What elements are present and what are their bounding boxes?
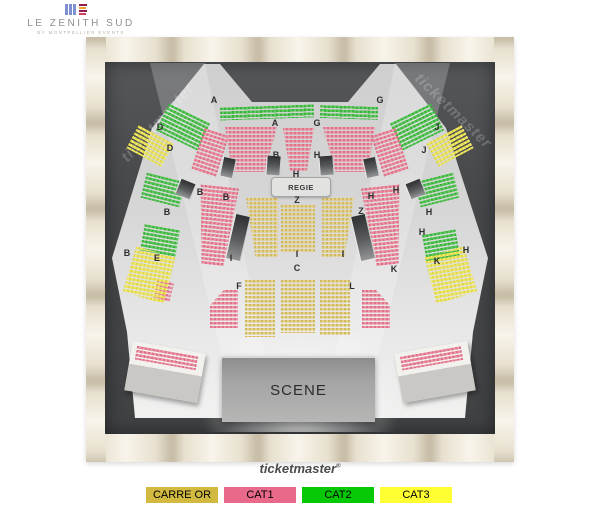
section-c-gold-center[interactable]	[281, 280, 315, 333]
venue-title: LE ZENITH SUD	[26, 18, 136, 29]
curtain-bottom	[86, 433, 514, 462]
section-label-i: I	[296, 249, 299, 259]
section-label-k: K	[434, 256, 441, 266]
section-label-b: B	[197, 187, 204, 197]
seating-chart-page: LE ZENITH SUD BY MONTPELLIER EVENTS tick…	[0, 0, 600, 509]
section-z-gold-center[interactable]	[281, 205, 315, 252]
section-label-e: E	[154, 253, 160, 263]
section-label-d: D	[157, 122, 164, 132]
section-label-j: J	[434, 122, 439, 132]
venue-logo: LE ZENITH SUD BY MONTPELLIER EVENTS	[26, 4, 136, 35]
legend-item-carre-or: CARRE OR	[146, 487, 218, 503]
section-label-z: Z	[358, 206, 364, 216]
category-legend: CARRE ORCAT1CAT2CAT3	[146, 487, 452, 503]
section-label-z: Z	[294, 195, 300, 205]
section-label-i: I	[230, 253, 233, 263]
section-label-b: B	[124, 248, 131, 258]
section-label-h: H	[426, 207, 433, 217]
section-label-b: B	[223, 192, 230, 202]
section-label-c: C	[294, 263, 301, 273]
section-label-a: A	[211, 95, 218, 105]
section-label-f: F	[236, 281, 242, 291]
regie-booth: REGIE	[271, 177, 331, 197]
section-c-gold-right[interactable]	[320, 280, 350, 336]
section-label-h: H	[419, 227, 426, 237]
section-label-a: A	[272, 118, 279, 128]
ticketmaster-footer-logo: ticketmaster®	[0, 461, 600, 476]
section-label-j: J	[421, 145, 426, 155]
venue-subtitle: BY MONTPELLIER EVENTS	[26, 30, 136, 35]
legend-item-cat2: CAT2	[302, 487, 374, 503]
section-label-g: G	[376, 95, 383, 105]
curtain-right	[494, 37, 514, 462]
section-label-h: H	[393, 185, 400, 195]
stage: SCENE	[222, 356, 375, 422]
legend-item-cat3: CAT3	[380, 487, 452, 503]
stairway	[318, 155, 334, 175]
section-label-h: H	[314, 150, 321, 160]
zenith-logo-icon	[16, 4, 136, 16]
section-label-i: I	[342, 249, 345, 259]
section-label-b: B	[164, 207, 171, 217]
section-label-h: H	[463, 245, 470, 255]
section-label-h: H	[368, 191, 375, 201]
section-c-gold-left[interactable]	[245, 280, 275, 337]
curtain-top	[86, 37, 514, 63]
section-label-h: H	[293, 169, 300, 179]
curtain-left	[86, 37, 106, 462]
section-label-d: D	[167, 143, 174, 153]
section-label-b: B	[273, 150, 280, 160]
section-label-k: K	[391, 264, 398, 274]
section-label-g: G	[313, 118, 320, 128]
section-g-cat2[interactable]	[320, 105, 378, 120]
section-label-l: L	[349, 281, 355, 291]
legend-item-cat1: CAT1	[224, 487, 296, 503]
